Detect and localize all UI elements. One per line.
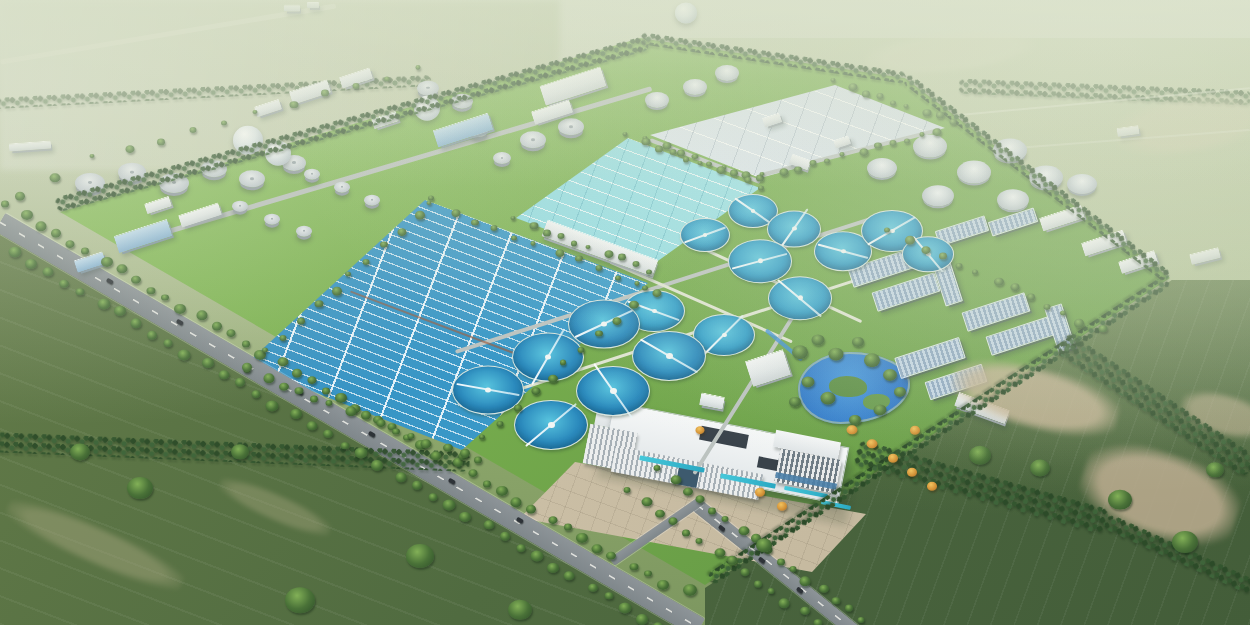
boulevard-trees	[845, 605, 853, 612]
boulevard-trees	[813, 619, 822, 625]
roadside-trees	[174, 304, 186, 314]
covered-tank	[715, 65, 739, 81]
roadside-trees	[242, 341, 250, 348]
plant-trees	[189, 127, 196, 133]
roadside-trees	[412, 481, 422, 490]
plant-trees	[325, 400, 332, 406]
plant-trees	[824, 158, 830, 163]
plant-trees	[361, 411, 371, 420]
plant-trees	[511, 235, 517, 240]
roadside-trees	[547, 563, 559, 573]
workshop	[988, 207, 1038, 236]
roadside-trees	[75, 288, 84, 296]
plant-trees	[922, 246, 931, 254]
plant-trees	[548, 375, 558, 384]
secondary-clarifier	[512, 333, 584, 382]
sludge-tank	[239, 170, 265, 187]
roadside-trees	[588, 584, 598, 593]
small-tank	[334, 182, 350, 193]
roadside-trees	[51, 229, 61, 238]
roadside-trees	[340, 442, 349, 450]
plant-trees	[655, 146, 663, 153]
plant-trees	[1074, 319, 1084, 328]
gatehouse	[699, 392, 725, 409]
secondary-clarifier	[514, 400, 588, 450]
plant-trees	[510, 216, 515, 220]
roadside-trees	[42, 267, 53, 276]
roadside-trees	[335, 393, 347, 403]
field-grove	[969, 446, 991, 465]
boulevard-trees	[768, 588, 775, 594]
plant-trees	[876, 93, 883, 99]
plant-trees	[345, 272, 351, 277]
roadside-trees	[25, 259, 37, 269]
dirt-path	[1, 490, 189, 600]
plant-trees	[629, 300, 639, 309]
roadside-trees	[619, 602, 632, 613]
plant-trees	[744, 177, 751, 183]
boulevard-trees	[819, 585, 829, 594]
roadside-trees	[644, 570, 652, 577]
field-grove	[70, 444, 90, 461]
boulevard-trees	[642, 497, 653, 506]
tree-belt	[639, 32, 906, 84]
roadside-trees	[323, 429, 333, 438]
small-tank	[493, 152, 511, 164]
plant-trees	[932, 128, 941, 136]
roadside-trees	[322, 388, 330, 395]
autumn-tree	[777, 502, 787, 511]
plant-trees	[595, 330, 603, 337]
roadside-trees	[266, 401, 279, 412]
pond-tree	[849, 415, 861, 425]
roadside-trees	[81, 247, 89, 254]
plant-trees	[949, 119, 956, 125]
plant-trees	[615, 275, 621, 280]
field-grove	[285, 587, 315, 613]
autumn-tree	[907, 468, 917, 477]
plant-trees	[595, 265, 602, 271]
plant-trees	[346, 406, 357, 415]
pond-tree	[789, 397, 801, 407]
roadside-trees	[97, 298, 110, 309]
boulevard-trees	[777, 558, 785, 565]
field-grove	[1030, 460, 1050, 477]
plant-trees	[321, 90, 329, 97]
roadside-trees	[161, 294, 169, 301]
plant-trees	[530, 241, 535, 245]
roadside-trees	[657, 580, 669, 590]
pond-tree	[894, 387, 906, 397]
covered-tank	[645, 92, 669, 108]
roadside-trees	[130, 319, 141, 328]
plant-objects	[0, 0, 1250, 625]
plant-trees	[362, 259, 369, 265]
gas-holder-sphere	[675, 3, 697, 24]
plant-trees	[632, 261, 639, 267]
roadside-trees	[549, 516, 558, 524]
clarifier	[728, 239, 792, 283]
plant-trees	[289, 101, 298, 109]
plant-road	[763, 127, 941, 176]
boulevard-trees	[832, 597, 841, 605]
field-tree	[15, 192, 25, 201]
roadside-trees	[114, 306, 126, 316]
plant-trees	[779, 168, 788, 176]
plant-trees	[557, 233, 564, 239]
plant-trees	[716, 166, 725, 174]
pond-tree	[802, 376, 815, 387]
plant-trees	[905, 236, 915, 245]
plant-trees	[380, 241, 388, 248]
plant-trees	[904, 138, 910, 143]
boulevard-trees	[655, 510, 665, 519]
plant-trees	[392, 428, 400, 435]
roadside-trees	[459, 512, 471, 522]
roadside-trees	[483, 520, 494, 529]
roadside-trees	[178, 349, 191, 360]
plant-trees	[618, 254, 626, 261]
covered-tank	[683, 79, 707, 95]
roadside-trees	[235, 378, 245, 387]
roadside-trees	[531, 551, 544, 562]
plant-trees	[677, 150, 685, 157]
covered-clarifier	[867, 158, 897, 178]
plant-trees	[662, 142, 671, 150]
plant-trees	[1010, 284, 1019, 292]
roadside-trees	[395, 473, 406, 482]
plant-trees	[420, 439, 431, 448]
pond-tree	[829, 348, 844, 361]
plant-building	[254, 99, 282, 117]
small-tank	[304, 169, 320, 180]
field-grove	[127, 477, 153, 499]
plant-trees	[859, 148, 868, 156]
roadside-trees	[442, 499, 455, 510]
boulevard-trees	[727, 556, 737, 565]
roadside-trees	[290, 409, 302, 419]
roadside-trees	[202, 358, 214, 368]
plant-trees	[994, 277, 1004, 286]
plant-trees	[669, 149, 676, 155]
plant-trees	[683, 157, 689, 162]
plant-trees	[221, 121, 227, 126]
roadside-trees	[36, 222, 47, 231]
plant-trees	[604, 250, 613, 258]
plant-trees	[622, 132, 627, 136]
secondary-clarifier	[576, 366, 650, 416]
plant-trees	[529, 222, 538, 230]
plant-trees	[575, 255, 583, 262]
roadside-trees	[371, 460, 383, 470]
roadside-trees	[606, 551, 616, 560]
plant-trees	[157, 138, 165, 145]
roadside-trees	[636, 614, 648, 624]
roadside-trees	[517, 545, 526, 553]
boulevard-trees	[653, 465, 660, 471]
roadside-trees	[576, 533, 588, 543]
small-tank	[264, 214, 280, 225]
roadside-trees	[212, 322, 222, 331]
plant-trees	[315, 300, 324, 308]
plant-trees	[692, 154, 699, 160]
plant-trees	[460, 449, 470, 458]
boulevard-trees	[800, 607, 810, 616]
reflecting-pool	[720, 473, 776, 489]
plant-trees	[955, 263, 962, 269]
roadside-trees	[9, 247, 22, 258]
plant-trees	[612, 317, 621, 325]
roadside-trees	[564, 571, 575, 580]
boulevard-trees	[779, 599, 790, 608]
roadside-trees	[629, 563, 638, 571]
plant-trees	[426, 201, 431, 205]
plant-trees	[479, 434, 485, 439]
roof-unit	[833, 135, 851, 149]
plant-trees	[903, 104, 908, 108]
plant-trees	[936, 112, 944, 119]
covered-clarifier	[957, 161, 991, 184]
roadside-trees	[146, 287, 155, 295]
roadside-trees	[277, 357, 288, 366]
plant-trees	[262, 348, 268, 353]
small-tank	[296, 226, 312, 237]
roadside-trees	[164, 339, 173, 347]
plant-trees	[279, 335, 286, 341]
plant-trees	[451, 209, 460, 217]
roadside-trees	[219, 370, 230, 379]
plant-trees	[849, 83, 858, 91]
boulevard-trees	[695, 538, 702, 544]
plant-trees	[89, 154, 94, 158]
roadside-trees	[197, 311, 208, 320]
roadside-trees	[59, 280, 69, 289]
small-tank	[232, 201, 248, 212]
boulevard-trees	[623, 487, 630, 493]
roadside-trees	[66, 240, 75, 248]
roadside-trees	[252, 390, 261, 398]
boulevard-trees	[708, 508, 716, 515]
plant-trees	[352, 83, 359, 89]
plant-trees	[922, 109, 931, 117]
plant-trees	[697, 160, 702, 164]
storage-tank	[520, 131, 546, 148]
boulevard-trees	[669, 518, 678, 526]
pond-tree	[812, 334, 825, 345]
plant-trees	[555, 249, 564, 257]
boulevard-trees	[682, 530, 690, 537]
roadside-trees	[500, 532, 510, 541]
plant-trees	[297, 317, 305, 324]
plant-trees	[794, 166, 802, 173]
covered-clarifier	[997, 189, 1029, 210]
plant-trees	[415, 211, 425, 220]
plant-trees	[407, 433, 414, 439]
roadside-trees	[307, 376, 316, 384]
plant-building	[745, 349, 791, 387]
roadside-trees	[483, 481, 491, 488]
plant-trees	[443, 444, 453, 453]
plant-trees	[376, 420, 385, 428]
field-tree	[50, 173, 61, 182]
roadside-trees	[101, 257, 113, 267]
plant-trees	[294, 387, 303, 395]
plant-trees	[531, 387, 540, 395]
plant-trees	[641, 138, 650, 146]
plant-trees	[1027, 294, 1035, 301]
roadside-trees	[131, 276, 141, 285]
field-grove	[406, 544, 434, 568]
plant-trees	[972, 269, 978, 274]
roadside-trees	[605, 592, 614, 600]
boulevard-trees	[741, 568, 750, 576]
storage-tank	[558, 118, 584, 135]
plant-building	[144, 196, 172, 214]
roadside-trees	[511, 498, 522, 507]
boulevard-trees	[683, 488, 693, 497]
secondary-clarifier	[632, 331, 706, 381]
clarifier	[680, 218, 730, 252]
plant-trees	[758, 185, 764, 190]
boulevard-trees	[721, 516, 728, 522]
autumn-tree	[927, 482, 937, 491]
boulevard-trees	[696, 496, 705, 504]
pond-tree	[883, 369, 897, 381]
plant-trees	[332, 287, 342, 296]
dirt-path	[215, 471, 335, 544]
autumn-tree	[696, 426, 705, 434]
pond-tree	[874, 404, 887, 415]
autumn-tree	[755, 488, 765, 497]
roadside-trees	[354, 448, 367, 459]
covered-clarifier	[1067, 174, 1097, 194]
pond-tree	[864, 353, 880, 367]
reflecting-pool	[784, 486, 828, 498]
roadside-trees	[468, 470, 477, 478]
roadside-trees	[428, 493, 437, 501]
plant-trees	[543, 230, 551, 237]
plant-trees	[384, 76, 390, 81]
field-grove	[756, 538, 772, 552]
plant-trees	[514, 404, 522, 411]
plant-trees	[471, 219, 479, 226]
reflecting-pool	[639, 455, 705, 473]
field-grove	[1172, 531, 1198, 553]
boulevard-trees	[789, 566, 796, 572]
plant-trees	[1043, 304, 1050, 310]
roadside-trees	[292, 369, 302, 378]
blue-roof-building	[114, 219, 173, 253]
plant-trees	[491, 225, 498, 231]
aerial-render-wastewater-plant	[0, 0, 1250, 625]
plant-trees	[889, 140, 896, 146]
plant-trees	[242, 363, 252, 372]
pond-tree	[821, 392, 836, 405]
plant-trees	[428, 196, 434, 201]
plant-trees	[890, 101, 896, 106]
plant-trees	[939, 252, 947, 259]
plant-trees	[874, 142, 882, 149]
covered-clarifier	[913, 135, 947, 158]
roadside-trees	[591, 544, 602, 553]
plant-trees	[415, 65, 420, 69]
small-tank	[364, 195, 380, 206]
pond-tree	[792, 345, 808, 359]
clarifier	[768, 276, 832, 320]
plant-trees	[310, 396, 318, 403]
plant-trees	[497, 421, 504, 427]
boulevard-trees	[754, 580, 762, 587]
boulevard-trees	[739, 526, 750, 535]
roadside-trees	[227, 329, 236, 337]
access-road	[609, 496, 704, 565]
roadside-trees	[307, 421, 318, 430]
plant-trees	[830, 78, 835, 82]
pond-tree	[852, 337, 864, 347]
plant-trees	[578, 347, 585, 353]
plant-trees	[862, 90, 870, 97]
field-grove	[508, 600, 532, 620]
plant-trees	[126, 145, 135, 153]
autumn-tree	[910, 426, 920, 435]
plant-trees	[397, 228, 406, 236]
plant-trees	[1098, 325, 1107, 333]
covered-clarifier	[922, 185, 954, 206]
boulevard-trees	[671, 475, 682, 484]
roadside-trees	[564, 523, 572, 530]
boulevard-trees	[857, 617, 864, 623]
autumn-tree	[847, 425, 858, 434]
plant-trees	[652, 289, 661, 297]
roadside-trees	[496, 486, 508, 496]
plant-trees	[474, 457, 482, 464]
autumn-tree	[888, 454, 898, 463]
roadside-trees	[526, 505, 536, 514]
plant-trees	[809, 160, 816, 166]
roadside-trees	[147, 331, 157, 340]
roof-unit	[762, 112, 782, 127]
roadside-trees	[116, 264, 127, 273]
plant-trees	[635, 281, 640, 285]
roadside-trees	[21, 210, 33, 220]
boulevard-trees	[714, 548, 725, 557]
roadside-trees	[1, 201, 9, 208]
plant-trees	[279, 382, 289, 391]
field-grove	[683, 584, 697, 596]
plant-trees	[730, 170, 738, 177]
